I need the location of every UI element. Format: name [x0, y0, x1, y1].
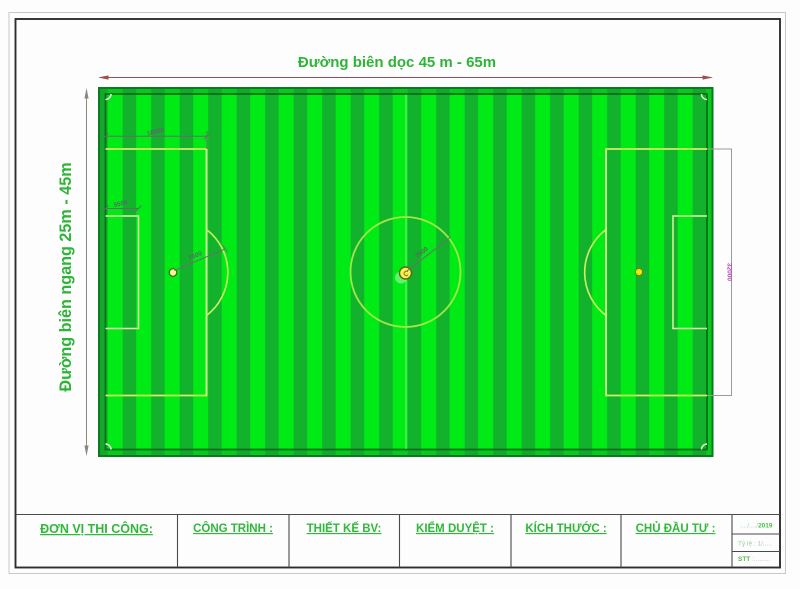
svg-text:Tỷ lệ : 1/.....: Tỷ lệ : 1/..... — [738, 541, 772, 548]
svg-text:32000: 32000 — [726, 263, 733, 281]
svg-text:STT :.........: STT :......... — [738, 556, 770, 563]
svg-text:THIẾT KẾ BV:: THIẾT KẾ BV: — [307, 522, 382, 535]
svg-text:Đường biên ngang 25m - 45m: Đường biên ngang 25m - 45m — [57, 162, 75, 391]
svg-text:CÔNG TRÌNH :: CÔNG TRÌNH : — [193, 522, 273, 535]
svg-text:Đường biên dọc 45 m - 65m: Đường biên dọc 45 m - 65m — [298, 54, 496, 71]
svg-text:CHỦ ĐẦU TƯ :: CHỦ ĐẦU TƯ : — [636, 522, 716, 535]
svg-text:..../..../2019: ..../..../2019 — [740, 523, 773, 530]
svg-text:KIỂM DUYỆT :: KIỂM DUYỆT : — [416, 522, 494, 535]
svg-text:KÍCH THƯỚC :: KÍCH THƯỚC : — [525, 522, 606, 535]
svg-text:ĐƠN VỊ THI CÔNG:: ĐƠN VỊ THI CÔNG: — [40, 521, 153, 536]
